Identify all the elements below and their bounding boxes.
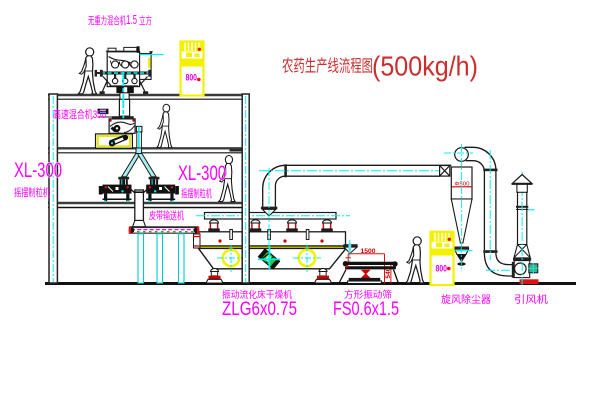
- svg-text:800: 800: [186, 73, 198, 84]
- svg-text:引风机: 引风机: [514, 293, 548, 306]
- svg-text:摇摆制粒机: 摇摆制粒机: [14, 186, 50, 199]
- svg-text:旋风除尘器: 旋风除尘器: [441, 293, 491, 306]
- svg-text:高速混合机350: 高速混合机350: [53, 107, 106, 121]
- svg-text:农药生产线流程图: 农药生产线流程图: [282, 57, 373, 76]
- svg-text:(500kg/h): (500kg/h): [372, 51, 478, 82]
- svg-text:1500: 1500: [361, 248, 377, 255]
- svg-text:皮带输送机: 皮带输送机: [149, 209, 184, 222]
- svg-text:ZLG6x0.75: ZLG6x0.75: [222, 299, 297, 320]
- svg-text:XL-300: XL-300: [178, 162, 226, 185]
- svg-text:FS0.6x1.5: FS0.6x1.5: [333, 299, 399, 320]
- svg-text:XL-300: XL-300: [14, 159, 62, 182]
- svg-text:800: 800: [436, 264, 448, 275]
- svg-text:摇摆制粒机: 摇摆制粒机: [181, 187, 212, 200]
- svg-text:无重力混合机1.5立方: 无重力混合机1.5立方: [88, 13, 152, 27]
